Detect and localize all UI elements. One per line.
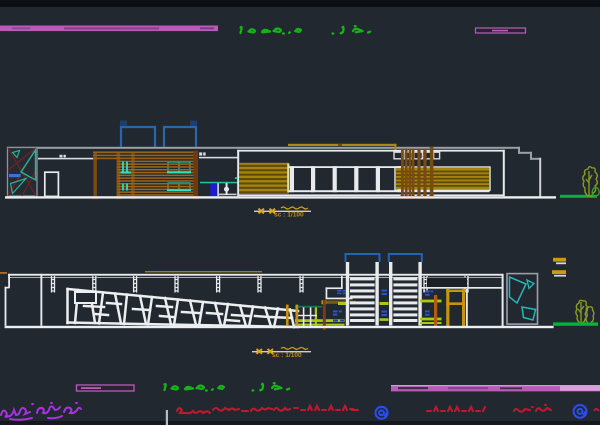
svg-text:sc : 1/100: sc : 1/100 (272, 352, 302, 359)
svg-text:sc : 1/100: sc : 1/100 (274, 211, 304, 218)
